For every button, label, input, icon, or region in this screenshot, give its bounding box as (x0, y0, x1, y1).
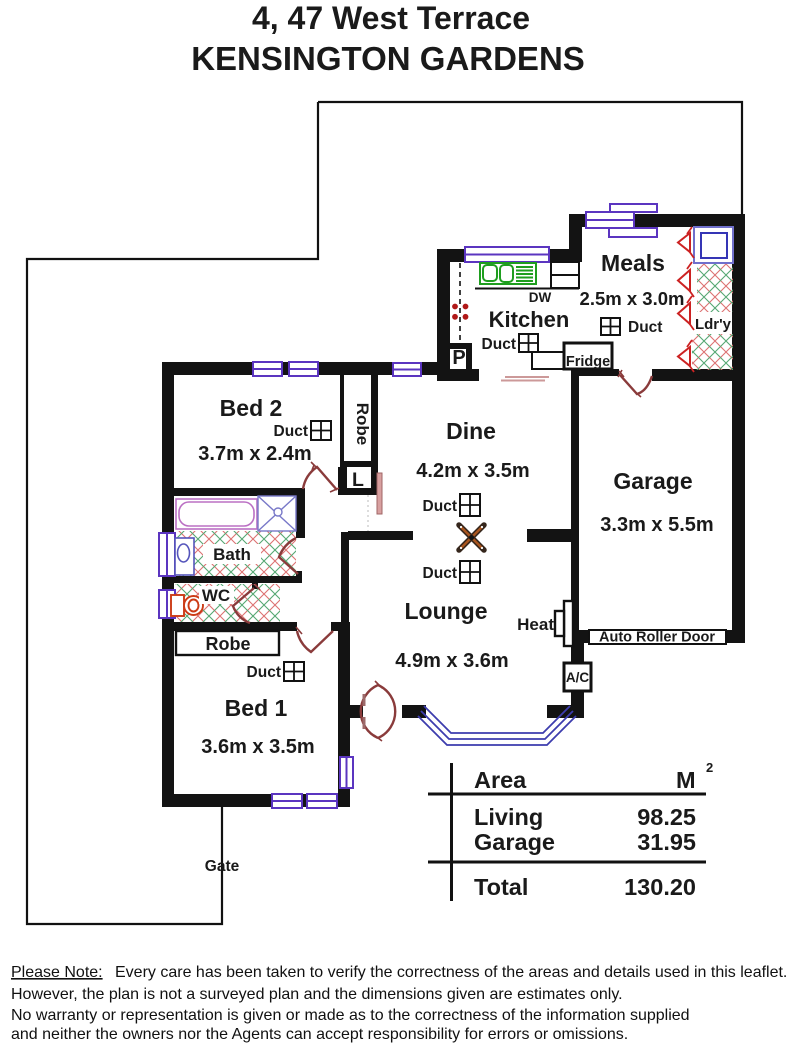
svg-text:Please Note:Every care has bee: Please Note:Every care has been taken to… (11, 964, 787, 981)
svg-text:Duct: Duct (482, 336, 516, 353)
svg-text:3.3m x 5.5m: 3.3m x 5.5m (600, 514, 713, 536)
svg-text:4.9m x 3.6m: 4.9m x 3.6m (395, 650, 508, 672)
svg-text:Garage: Garage (474, 829, 555, 855)
svg-text:130.20: 130.20 (624, 874, 696, 900)
svg-text:KENSINGTON GARDENS: KENSINGTON GARDENS (191, 40, 585, 77)
svg-text:2: 2 (706, 760, 713, 775)
svg-text:Duct: Duct (274, 423, 308, 440)
svg-text:4, 47 West Terrace: 4, 47 West Terrace (252, 0, 530, 36)
svg-text:Meals: Meals (601, 250, 665, 276)
svg-text:2.5m x 3.0m: 2.5m x 3.0m (580, 288, 685, 309)
svg-text:No warranty or representation: No warranty or representation is given o… (11, 1007, 690, 1024)
svg-text:Bed 2: Bed 2 (220, 395, 283, 421)
svg-text:Bed 1: Bed 1 (225, 695, 288, 721)
svg-text:L: L (352, 469, 364, 491)
svg-text:4.2m x 3.5m: 4.2m x 3.5m (416, 460, 529, 482)
svg-text:Heat: Heat (517, 615, 554, 634)
svg-text:3.7m x 2.4m: 3.7m x 2.4m (198, 443, 311, 465)
svg-text:A/C: A/C (566, 670, 590, 685)
svg-text:Duct: Duct (423, 498, 457, 515)
svg-text:Fridge: Fridge (566, 354, 610, 370)
svg-text:98.25: 98.25 (637, 804, 696, 830)
svg-text:Area: Area (474, 767, 527, 793)
svg-text:3.6m x 3.5m: 3.6m x 3.5m (201, 736, 314, 758)
svg-text:Robe: Robe (206, 634, 251, 654)
svg-text:Dine: Dine (446, 418, 496, 444)
svg-text:Ldr'y: Ldr'y (695, 316, 732, 333)
svg-text:and neither the owners nor the: and neither the owners nor the Agents ca… (11, 1026, 628, 1043)
svg-text:Living: Living (474, 804, 543, 830)
svg-text:Duct: Duct (247, 664, 281, 681)
svg-text:Bath: Bath (213, 545, 251, 564)
svg-text:WC: WC (202, 586, 230, 605)
svg-text:Auto Roller Door: Auto Roller Door (599, 630, 715, 646)
svg-text:Gate: Gate (205, 858, 240, 875)
svg-text:P: P (452, 347, 465, 369)
svg-text:DW: DW (529, 290, 552, 305)
svg-text:Robe: Robe (353, 403, 372, 446)
svg-text:Duct: Duct (628, 319, 662, 336)
svg-text:M: M (676, 767, 696, 793)
svg-text:Kitchen: Kitchen (489, 307, 570, 332)
svg-text:However, the plan is not a sur: However, the plan is not a surveyed plan… (11, 986, 623, 1003)
svg-text:Lounge: Lounge (404, 598, 487, 624)
svg-text:Garage: Garage (613, 468, 692, 494)
svg-text:Duct: Duct (423, 565, 457, 582)
svg-text:Total: Total (474, 874, 528, 900)
svg-text:31.95: 31.95 (637, 829, 696, 855)
